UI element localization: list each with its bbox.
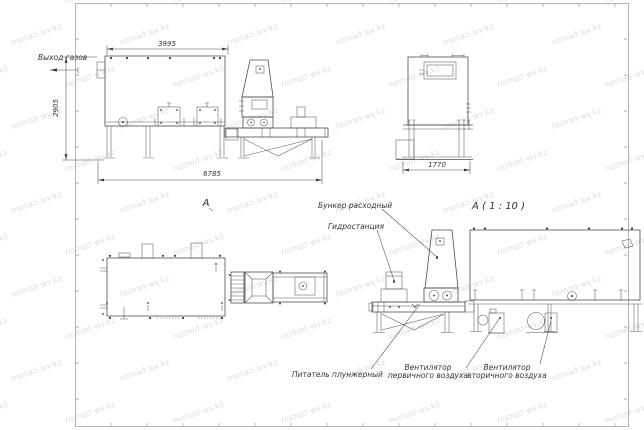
detail-furnace-body (468, 227, 642, 331)
detail-secondary-fan (526, 313, 558, 333)
hopper-tower-side (239, 60, 273, 128)
detail-hydro-station (381, 272, 407, 302)
feeder-conveyor-side (225, 107, 328, 158)
detail-hopper (424, 230, 458, 302)
view-plan (100, 243, 327, 319)
callout-hydro: Гидростанция (328, 222, 385, 231)
plan-feeder-conveyor (229, 271, 327, 305)
sheet-frame (76, 4, 629, 427)
dim-6785-text: 6785 (203, 170, 221, 178)
detail-primary-fan (478, 309, 505, 333)
view-a-label: А (202, 198, 213, 211)
callout-hopper: Бункер расходный (318, 201, 392, 210)
cad-drawing-preview: nomad-wv.kznomad-wv.kznomad-wv.kznomad-w… (0, 0, 644, 430)
view-side-elevation: Выход газов 3995 (38, 40, 328, 211)
dim-top-width: 3995 (107, 40, 228, 55)
view-a-detail-text: А ( 1 : 10 ) (471, 201, 525, 212)
view-front: 1770 (396, 54, 473, 174)
dim-front-width: 1770 (403, 161, 470, 174)
furnace-body-side (97, 56, 225, 126)
dim-total-length: 6785 (98, 140, 322, 184)
view-detail-a: А ( 1 : 10 ) (292, 201, 642, 380)
view-a-text: А (202, 198, 210, 209)
dim-3995-text: 3995 (158, 40, 176, 48)
dim-1770-text: 1770 (428, 161, 446, 169)
gas-outlet-label: Выход газов (38, 53, 87, 62)
furnace-hatches (119, 103, 222, 127)
plan-bolt-marks (106, 263, 223, 311)
callout-fan-primary-line2: первичного воздуха (388, 371, 468, 380)
callout-fan-secondary-line2: вторичного воздуха (467, 371, 547, 380)
detail-feeder-conveyor (369, 301, 474, 333)
drawing-canvas: Выход газов 3995 (0, 0, 644, 430)
furnace-support-frame (104, 126, 228, 158)
dim-2905-text: 2905 (52, 99, 60, 117)
gas-outlet-arrow-icon (50, 67, 78, 73)
callout-feeder: Питатель плунжерный (292, 370, 383, 379)
